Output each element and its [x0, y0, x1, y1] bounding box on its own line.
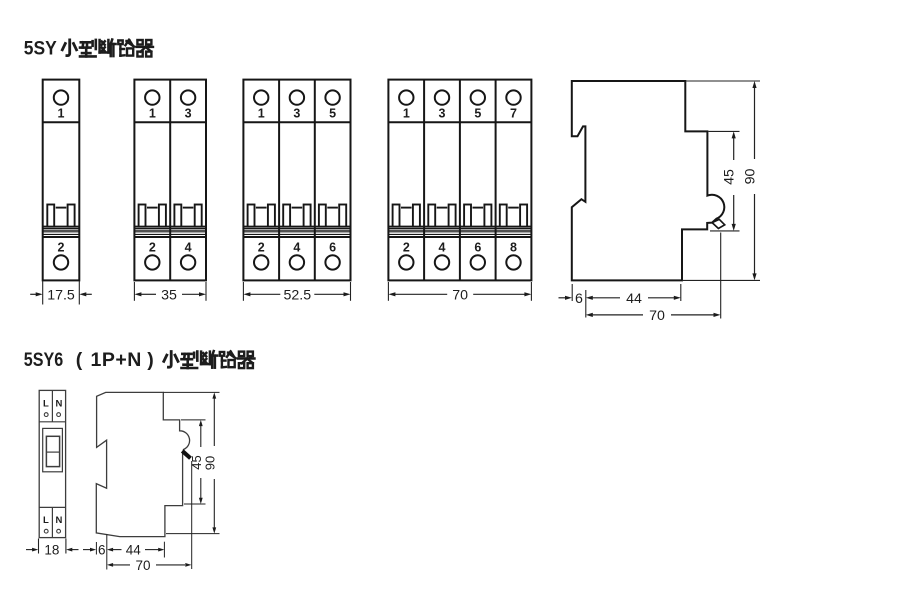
- svg-text:N: N: [55, 398, 62, 409]
- svg-text:5: 5: [329, 107, 336, 121]
- svg-text:44: 44: [126, 543, 142, 558]
- svg-text:N: N: [55, 515, 62, 526]
- svg-text:1: 1: [258, 107, 265, 121]
- svg-text:3: 3: [185, 107, 192, 121]
- svg-text:52.5: 52.5: [283, 287, 311, 303]
- svg-text:2: 2: [403, 241, 410, 255]
- svg-text:3: 3: [293, 107, 300, 121]
- svg-text:90: 90: [743, 169, 759, 185]
- svg-text:4: 4: [439, 241, 446, 255]
- svg-text:70: 70: [452, 287, 468, 303]
- svg-text:L: L: [43, 515, 49, 526]
- svg-text:1: 1: [58, 107, 65, 121]
- svg-text:7: 7: [510, 107, 517, 121]
- svg-text:8: 8: [510, 241, 517, 255]
- svg-text:2: 2: [58, 241, 65, 255]
- svg-text:6: 6: [575, 291, 583, 307]
- svg-text:6: 6: [329, 241, 336, 255]
- svg-text:5: 5: [474, 107, 481, 121]
- svg-text:5SY: 5SY: [24, 38, 57, 60]
- svg-text:17.5: 17.5: [47, 287, 75, 303]
- svg-text:18: 18: [44, 543, 59, 558]
- svg-text:45: 45: [722, 169, 738, 185]
- svg-text:70: 70: [135, 558, 150, 573]
- svg-text:6: 6: [474, 241, 481, 255]
- svg-text:1P+N: 1P+N: [91, 349, 142, 371]
- svg-text:1: 1: [403, 107, 410, 121]
- svg-text:70: 70: [649, 308, 665, 324]
- svg-text:90: 90: [202, 456, 217, 470]
- svg-text:3: 3: [439, 107, 446, 121]
- svg-text:1: 1: [149, 107, 156, 121]
- svg-text:4: 4: [185, 241, 192, 255]
- svg-text:35: 35: [161, 287, 177, 303]
- svg-text:44: 44: [626, 291, 642, 307]
- svg-text:(: (: [76, 349, 83, 371]
- svg-text:L: L: [43, 398, 49, 409]
- svg-text:5SY6: 5SY6: [24, 349, 64, 371]
- svg-text:4: 4: [293, 241, 300, 255]
- svg-text:2: 2: [149, 241, 156, 255]
- svg-text:6: 6: [98, 543, 106, 558]
- svg-text:): ): [147, 349, 154, 371]
- svg-text:2: 2: [258, 241, 265, 255]
